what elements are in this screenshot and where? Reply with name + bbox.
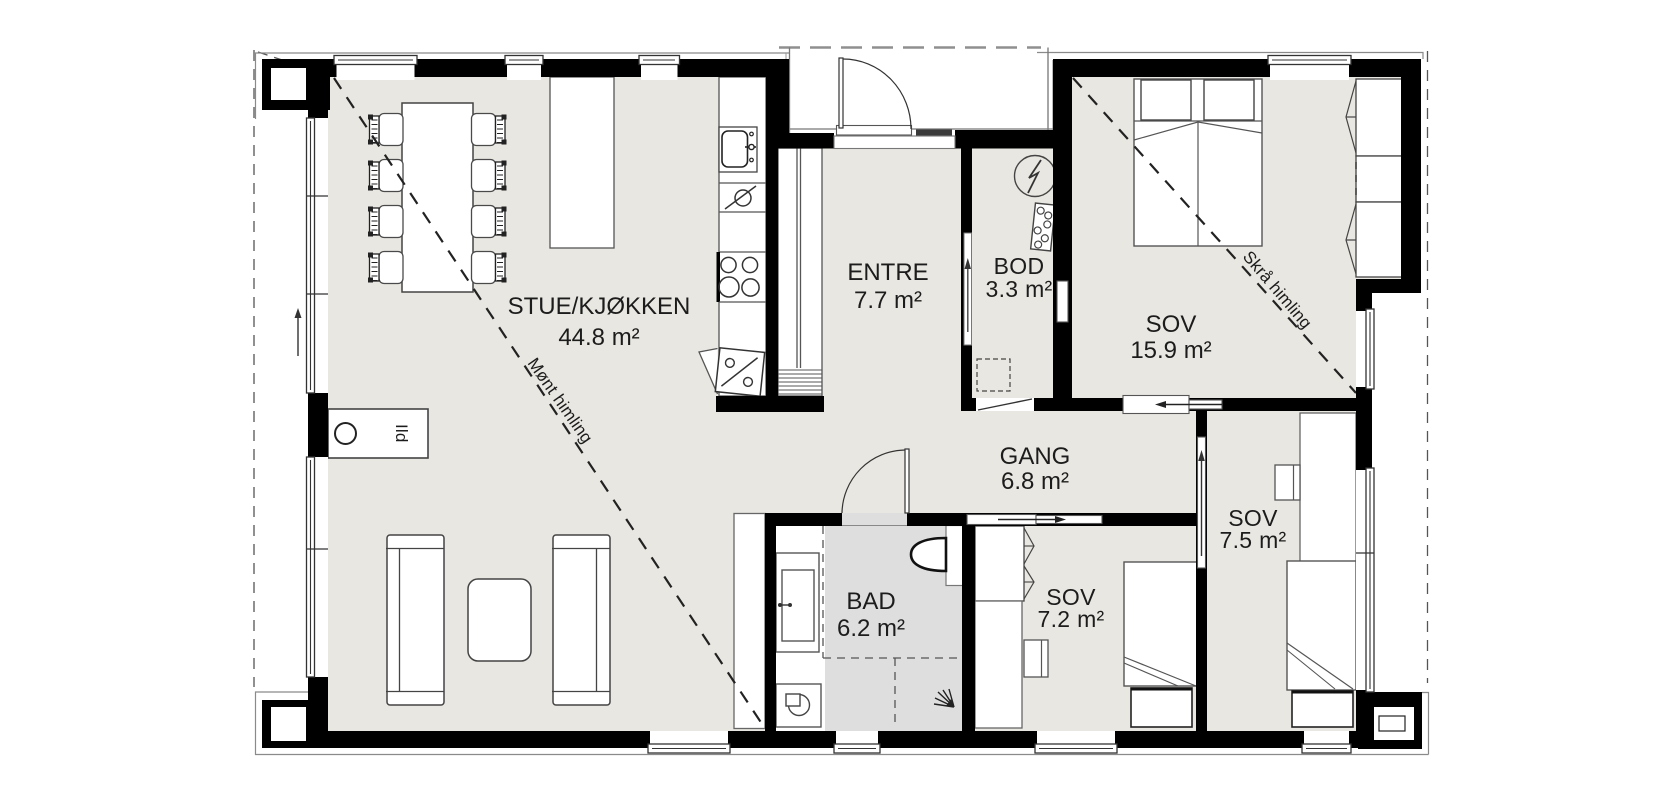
svg-text:GANG: GANG	[1000, 443, 1071, 470]
svg-text:15.9 m²: 15.9 m²	[1130, 337, 1211, 364]
svg-text:7.7 m²: 7.7 m²	[854, 287, 922, 314]
svg-text:Ild: Ild	[392, 424, 411, 443]
svg-text:ENTRE: ENTRE	[847, 259, 928, 286]
svg-text:6.8 m²: 6.8 m²	[1001, 468, 1069, 495]
svg-text:SOV: SOV	[1146, 311, 1197, 338]
svg-text:7.2 m²: 7.2 m²	[1038, 606, 1105, 632]
svg-text:STUE/KJØKKEN: STUE/KJØKKEN	[508, 293, 691, 320]
svg-text:3.3 m²: 3.3 m²	[986, 276, 1053, 302]
svg-text:7.5 m²: 7.5 m²	[1220, 527, 1287, 553]
svg-text:44.8 m²: 44.8 m²	[558, 324, 639, 351]
svg-text:BAD: BAD	[846, 588, 895, 615]
svg-text:6.2 m²: 6.2 m²	[837, 615, 905, 642]
